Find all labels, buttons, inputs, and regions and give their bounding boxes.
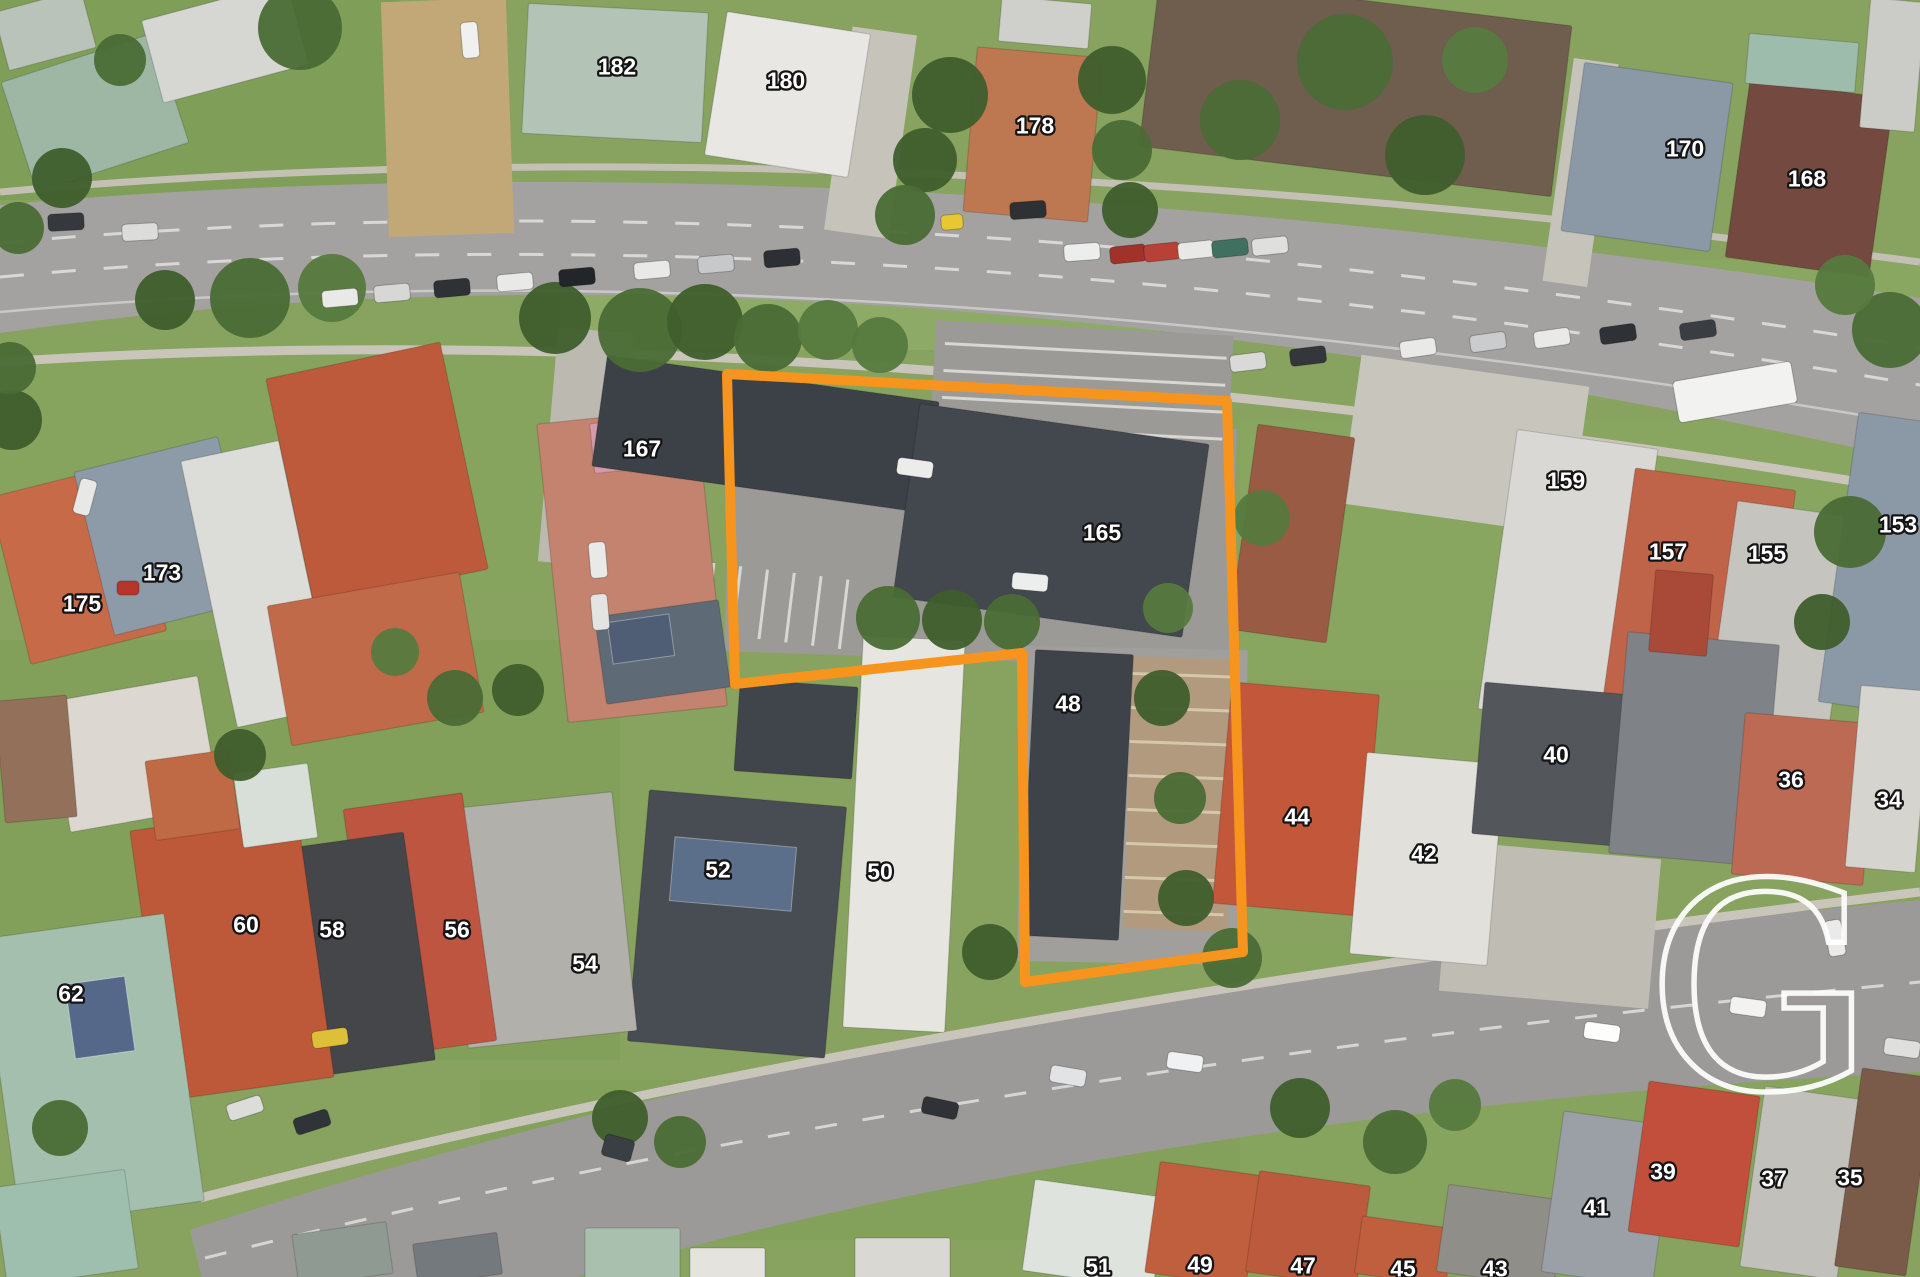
- house-roof: [855, 1238, 950, 1277]
- tree: [1794, 594, 1850, 650]
- tree: [1234, 490, 1290, 546]
- house-number-label: 180: [767, 67, 805, 93]
- tree: [135, 270, 195, 330]
- tree: [214, 729, 266, 781]
- house-number-label: 42: [1411, 840, 1437, 866]
- tree: [32, 148, 92, 208]
- house-number-label: 170: [1666, 135, 1704, 161]
- house-number-label: 50: [867, 858, 893, 884]
- satellite-scene: 1821801781701681671651751731591571551534…: [0, 0, 1920, 1277]
- car: [697, 254, 734, 274]
- house-roof: [843, 636, 965, 1033]
- house-number-label: 51: [1085, 1253, 1111, 1277]
- house-number-label: 165: [1083, 519, 1122, 545]
- house-number-label: 40: [1543, 741, 1569, 767]
- house-number-label: 34: [1876, 786, 1902, 812]
- car: [1011, 572, 1048, 592]
- tree: [1297, 14, 1393, 110]
- car: [1289, 345, 1327, 366]
- tree: [94, 34, 146, 86]
- house-roof: [0, 1169, 138, 1277]
- tree: [32, 1100, 88, 1156]
- car: [373, 283, 410, 303]
- house-number-label: 35: [1837, 1164, 1863, 1190]
- car: [633, 260, 670, 280]
- house-number-label: 168: [1788, 165, 1827, 191]
- car: [1109, 244, 1147, 265]
- house-number-label: 159: [1547, 467, 1585, 493]
- tree: [1078, 46, 1146, 114]
- tree: [734, 304, 802, 372]
- watermark-logo-g: G: [1646, 824, 1874, 1156]
- house-roof: [734, 679, 858, 779]
- house-roof: [1561, 62, 1733, 251]
- house-number-label: 37: [1761, 1165, 1787, 1191]
- house-number-label: 60: [233, 911, 259, 937]
- house-roof: [1745, 33, 1859, 92]
- tree: [667, 284, 743, 360]
- house-number-label: 155: [1748, 540, 1787, 566]
- tree: [1134, 670, 1190, 726]
- house-number-label: 62: [58, 980, 84, 1006]
- tree: [856, 586, 920, 650]
- house-number-label: 58: [319, 916, 345, 942]
- tree: [1429, 1079, 1481, 1131]
- car: [1251, 236, 1289, 257]
- tree: [210, 258, 290, 338]
- car: [1063, 242, 1100, 261]
- car: [1229, 351, 1267, 372]
- house-number-label: 47: [1290, 1252, 1316, 1277]
- paved-area: [381, 0, 514, 237]
- house-number-label: 52: [705, 856, 731, 882]
- solar-panels: [607, 614, 674, 664]
- tree: [912, 57, 988, 133]
- house-roof: [0, 695, 77, 823]
- tree: [1158, 870, 1214, 926]
- house-number-label: 45: [1390, 1255, 1416, 1277]
- house-number-label: 39: [1650, 1158, 1676, 1184]
- tree: [875, 185, 935, 245]
- tree: [1815, 255, 1875, 315]
- car: [763, 248, 800, 268]
- tree: [962, 924, 1018, 980]
- house-roof: [998, 0, 1092, 49]
- tree: [427, 670, 483, 726]
- house-roof: [1649, 570, 1714, 657]
- house-number-label: 175: [63, 590, 102, 616]
- house-roof: [705, 12, 871, 178]
- house-roof: [690, 1248, 765, 1277]
- tree: [1442, 27, 1508, 93]
- car: [122, 223, 159, 242]
- house-number-label: 178: [1016, 112, 1055, 138]
- tree: [1814, 496, 1886, 568]
- house-number-label: 54: [572, 950, 598, 976]
- car: [321, 288, 358, 308]
- tree: [298, 254, 366, 322]
- solar-panels: [669, 837, 796, 911]
- car: [1143, 242, 1181, 263]
- house-number-label: 56: [444, 916, 470, 942]
- tree: [371, 628, 419, 676]
- car: [496, 272, 533, 292]
- house-number-label: 36: [1778, 766, 1804, 792]
- car: [1211, 238, 1249, 259]
- car: [588, 541, 608, 578]
- car: [460, 21, 480, 58]
- tree: [984, 594, 1040, 650]
- tree: [1200, 80, 1280, 160]
- tree: [1154, 772, 1206, 824]
- tree: [1270, 1078, 1330, 1138]
- house-number-label: 44: [1284, 803, 1310, 829]
- house-number-label: 167: [623, 435, 661, 461]
- tree: [1092, 120, 1152, 180]
- car: [1009, 200, 1046, 219]
- tree: [922, 590, 982, 650]
- car: [48, 213, 85, 232]
- house-number-label: 153: [1879, 511, 1917, 537]
- house-number-label: 173: [143, 559, 181, 585]
- aerial-map-canvas[interactable]: 1821801781701681671651751731591571551534…: [0, 0, 1920, 1277]
- tree: [1363, 1110, 1427, 1174]
- tree: [1385, 115, 1465, 195]
- tree: [893, 128, 957, 192]
- house-roof: [1859, 0, 1920, 132]
- car: [940, 214, 963, 231]
- car: [1177, 240, 1215, 261]
- car: [117, 581, 139, 595]
- tree: [798, 300, 858, 360]
- tree: [1143, 583, 1193, 633]
- house-number-label: 48: [1055, 690, 1081, 716]
- house-roof: [585, 1228, 680, 1277]
- tree: [492, 664, 544, 716]
- house-number-label: 41: [1583, 1194, 1609, 1220]
- house-number-label: 182: [598, 53, 636, 79]
- tree: [519, 282, 591, 354]
- tree: [654, 1116, 706, 1168]
- house-number-label: 49: [1187, 1251, 1213, 1277]
- house-roof: [627, 790, 846, 1058]
- tree: [852, 317, 908, 373]
- car: [590, 593, 610, 630]
- tree: [1102, 182, 1158, 238]
- car: [558, 267, 595, 287]
- house-number-label: 43: [1482, 1255, 1508, 1277]
- house-number-label: 157: [1649, 538, 1687, 564]
- car: [433, 278, 470, 298]
